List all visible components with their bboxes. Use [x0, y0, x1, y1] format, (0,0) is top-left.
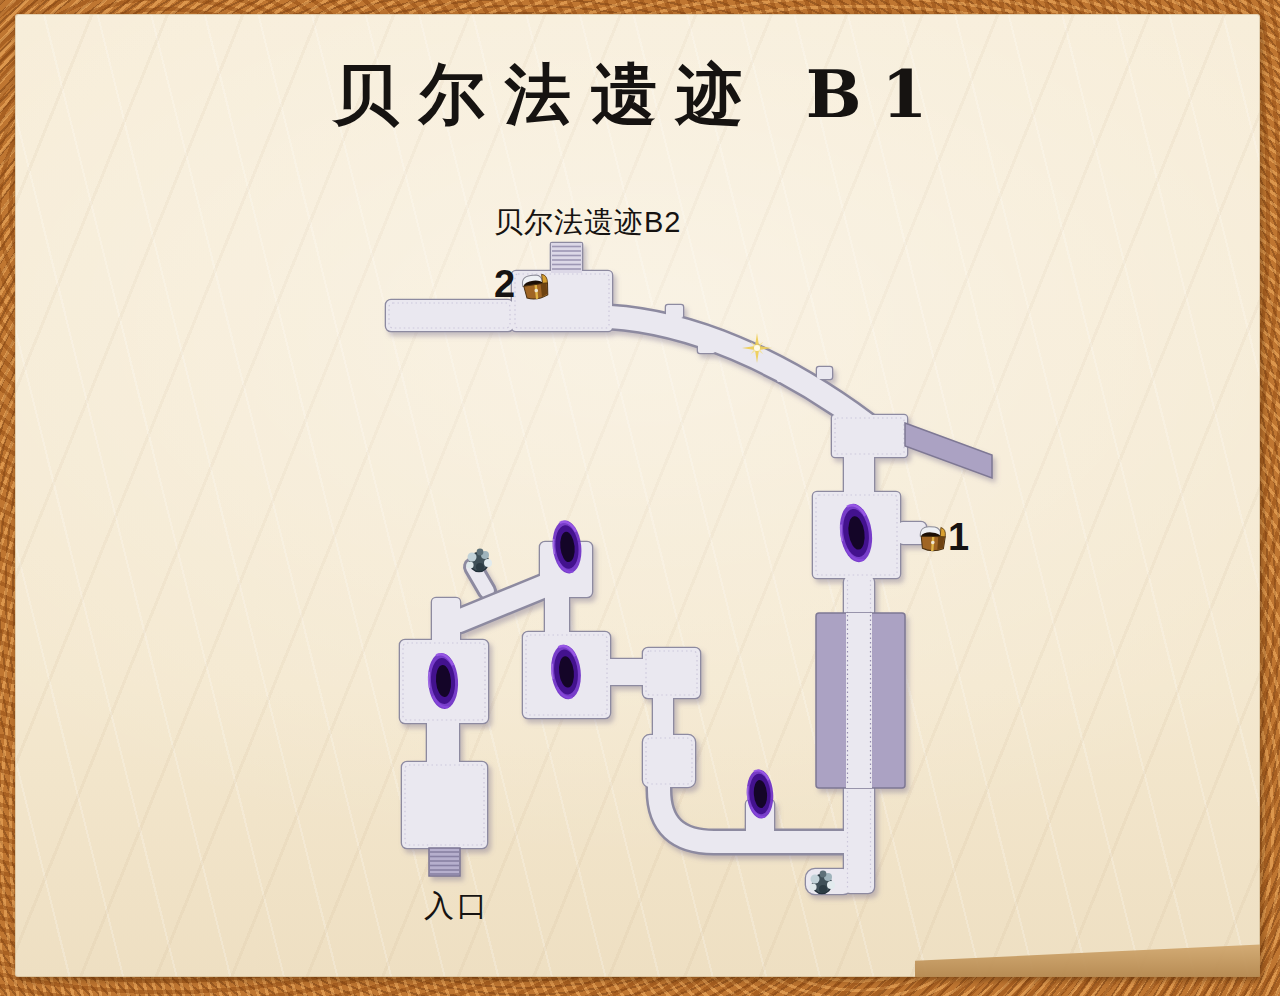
screenshot-root: 贝尔法遗迹 B1 贝尔法遗迹B2 入口 1 2 [0, 0, 1280, 996]
dungeon-map-canvas [0, 0, 1280, 996]
platform-hall [816, 613, 905, 788]
treasure-chest-icon-1 [919, 526, 946, 552]
chest-1-number: 1 [948, 516, 969, 559]
entrance-stairs [429, 848, 460, 876]
chest-2-number: 2 [494, 263, 515, 306]
slanted-ramp [905, 423, 992, 478]
stairs-to-b2 [551, 243, 582, 273]
map-title: 贝尔法遗迹 B1 [0, 50, 1280, 140]
rock-icon-1 [466, 549, 492, 572]
label-entrance: 入口 [424, 886, 490, 927]
label-exit-to-b2: 贝尔法遗迹B2 [494, 203, 681, 243]
